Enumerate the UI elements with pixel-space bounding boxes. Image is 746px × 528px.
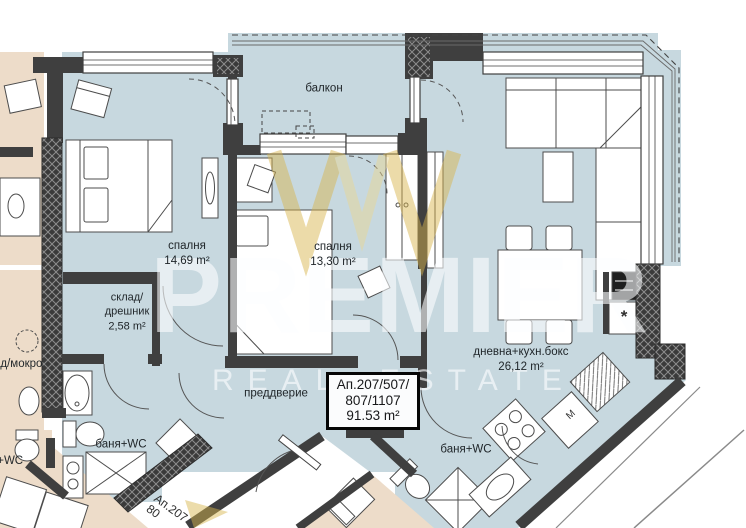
label-bedroom2: спалня 13,30 m² [310, 240, 355, 270]
bedroom2-area: 13,30 m² [310, 255, 355, 270]
balcony-door-living [410, 77, 420, 123]
label-bath-right: баня+WC [440, 443, 491, 458]
fridge-star-marker: * [621, 307, 628, 327]
label-hallway: преддверие [244, 387, 308, 402]
neighbor-armchair [4, 79, 41, 113]
label-neighbor-bottom-left: я+WC [0, 455, 23, 467]
living-name: дневна+кухн.бокс [473, 345, 568, 360]
label-bedroom1: спалня 14,69 m² [164, 239, 209, 269]
dresser [202, 158, 218, 218]
label-bath-left: баня+WC [95, 438, 146, 453]
apartment-info-box: Ап.207/507/ 807/1107 91.53 m² [326, 372, 420, 430]
apartment-numbers-1: Ап.207/507/ [329, 377, 417, 393]
window-living-top [483, 52, 643, 74]
label-neighbor-left: ад/мокро [0, 358, 42, 370]
label-storage: склад/ дрешник 2,58 m² [105, 291, 150, 334]
apartment-numbers-2: 807/1107 [329, 393, 417, 409]
bed-double [66, 140, 172, 232]
storage-area: 2,58 m² [105, 319, 150, 333]
bedroom2-name: спалня [310, 240, 355, 255]
kitchen-shelf [612, 272, 636, 300]
coffee-table [543, 152, 573, 202]
storage-name-2: дрешник [105, 305, 150, 319]
label-living: дневна+кухн.бокс 26,12 m² [473, 345, 568, 375]
window-living-right [641, 76, 663, 264]
storage-name-1: склад/ [105, 291, 150, 305]
sink-left [63, 371, 92, 415]
window-bedroom1 [83, 52, 213, 73]
apartment-total-area: 91.53 m² [329, 408, 417, 424]
bedroom1-area: 14,69 m² [164, 254, 209, 269]
bedroom1-name: спалня [164, 239, 209, 254]
label-balcony: балкон [305, 82, 342, 97]
living-area: 26,12 m² [473, 360, 568, 375]
floor-plan: PREMIER REAL ESTATE балкон спалня 14,69 … [0, 0, 746, 528]
